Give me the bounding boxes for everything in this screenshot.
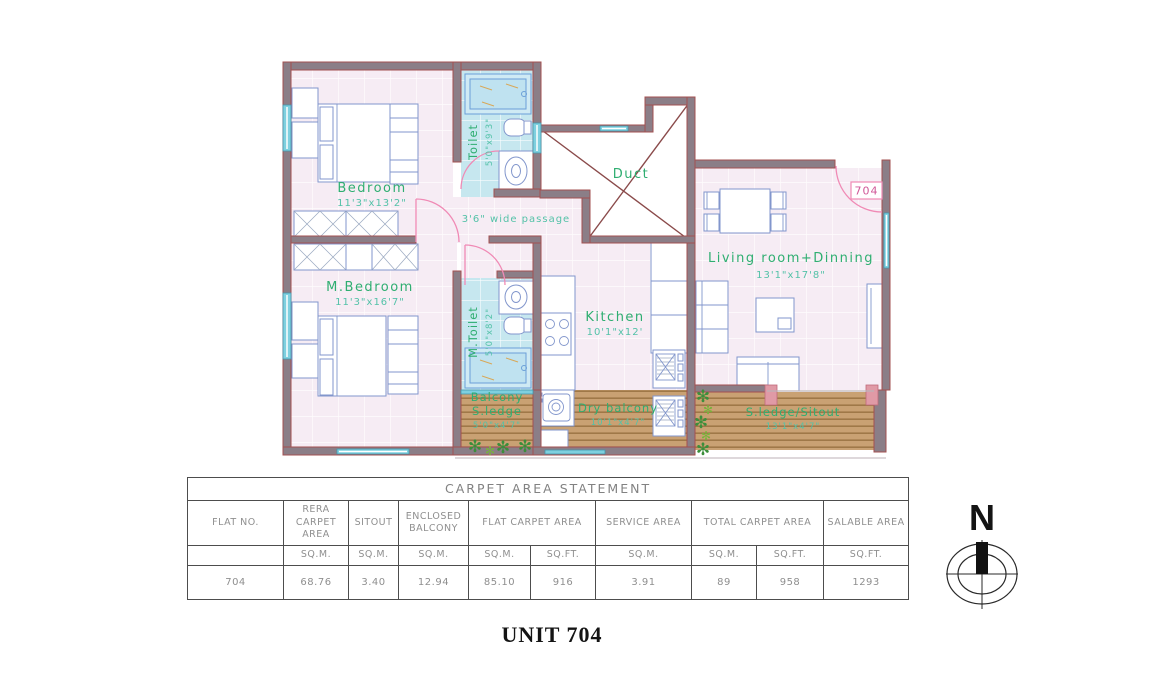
window — [600, 126, 628, 131]
unit-cell: SQ.FT. — [824, 546, 909, 566]
hob — [541, 313, 571, 355]
pillow — [320, 145, 333, 179]
unit-cell: SQ.M. — [349, 546, 399, 566]
wardrobe — [372, 244, 418, 270]
living-label: Living room+Dinning — [708, 251, 874, 266]
pillow — [320, 107, 333, 141]
side-table — [292, 122, 318, 158]
unit-title: UNIT 704 — [452, 622, 652, 648]
value-rera-carpet: 68.76 — [284, 566, 349, 600]
col-service-area: SERVICE AREA — [596, 501, 692, 546]
plant-icon: ✻ — [485, 444, 495, 458]
value-total-carpet-sqft: 958 — [757, 566, 824, 600]
value-flat-no: 704 — [188, 566, 284, 600]
toilet-dims: 5'0"x9'3" — [485, 118, 495, 166]
col-total-carpet-area: TOTAL CARPET AREA — [692, 501, 824, 546]
value-service-area: 3.91 — [596, 566, 692, 600]
tall-unit — [651, 315, 687, 353]
table-header-row: FLAT NO. RERA CARPET AREA SITOUT ENCLOSE… — [188, 501, 909, 546]
table-title-row: CARPET AREA STATEMENT — [188, 478, 909, 501]
window — [337, 449, 409, 454]
sitout-pillar — [765, 385, 777, 405]
north-label: N — [969, 497, 995, 538]
compass-needle — [976, 542, 988, 574]
carpet-area-table: CARPET AREA STATEMENT FLAT NO. RERA CARP… — [187, 477, 909, 600]
col-rera-carpet-area: RERA CARPET AREA — [284, 501, 349, 546]
sofa-three-seat — [696, 281, 728, 353]
col-salable-area: SALABLE AREA — [824, 501, 909, 546]
plant-icon: ✻ — [496, 438, 510, 458]
sitout-label: S.ledge/Sitout — [746, 405, 841, 419]
flat-number-tag: 704 — [851, 182, 882, 199]
wc — [504, 119, 536, 136]
kitchen-label: Kitchen — [585, 310, 644, 325]
plant-icon: ✻ — [696, 440, 710, 460]
col-enclosed-balcony: ENCLOSED BALCONY — [399, 501, 469, 546]
toilet-label: Toilet — [466, 124, 480, 161]
m-bedroom-label: M.Bedroom — [326, 280, 414, 295]
flat-number: 704 — [855, 185, 879, 198]
table-units-row: SQ.M. SQ.M. SQ.M. SQ.M. SQ.FT. SQ.M. SQ.… — [188, 546, 909, 566]
side-table — [292, 88, 318, 118]
window — [283, 293, 291, 359]
sitout-pillar — [866, 385, 878, 405]
window — [884, 213, 889, 268]
value-total-carpet-sqm: 89 — [692, 566, 757, 600]
unit-cell: SQ.M. — [284, 546, 349, 566]
m-toilet-dims: 5'0"x8'2" — [485, 308, 495, 356]
north-compass: N — [932, 496, 1032, 618]
bedroom-label: Bedroom — [337, 181, 406, 196]
sitout-floor — [695, 392, 876, 450]
floor-plan-sheet: 704 ✻ ✻ ✻ ✻ ✻ ✻ ✻ ✻ ✻ Bedroom 11'3"x13'2… — [0, 0, 1170, 700]
wardrobe — [346, 244, 372, 270]
wc — [504, 317, 536, 334]
unit-cell — [188, 546, 284, 566]
wardrobe — [294, 211, 346, 237]
m-bedroom-dims: 11'3"x16'7" — [335, 297, 405, 308]
plant-icon: ✻ — [468, 437, 482, 457]
kitchen-dims: 10'1"x12' — [587, 327, 644, 338]
unit-cell: SQ.FT. — [757, 546, 824, 566]
balcony-label-line1: Balcony — [471, 390, 524, 404]
wardrobe — [346, 211, 398, 237]
tv-unit — [867, 284, 882, 348]
floor-plan-drawing: 704 ✻ ✻ ✻ ✻ ✻ ✻ ✻ ✻ ✻ Bedroom 11'3"x13'2… — [0, 0, 1170, 472]
col-flat-carpet-area: FLAT CARPET AREA — [469, 501, 596, 546]
value-sitout: 3.40 — [349, 566, 399, 600]
side-table — [292, 344, 318, 378]
dry-balcony-dims: 10'1"x4'7" — [591, 418, 646, 428]
sitout-dims: 13'1"x4'7" — [766, 422, 821, 432]
unit-cell: SQ.M. — [596, 546, 692, 566]
m-toilet-label: M.Toilet — [466, 306, 480, 358]
unit-cell: SQ.M. — [692, 546, 757, 566]
compass-icon: N — [932, 496, 1032, 614]
value-flat-carpet-sqft: 916 — [531, 566, 596, 600]
balcony-dims: 5'0"x4'7" — [473, 421, 521, 431]
window — [283, 105, 291, 151]
col-flat-no: FLAT NO. — [188, 501, 284, 546]
tall-unit — [651, 243, 687, 315]
window — [545, 450, 605, 454]
washbasin — [499, 151, 533, 191]
dry-balcony-label: Dry balcony — [578, 401, 658, 415]
window — [533, 123, 541, 153]
col-sitout: SITOUT — [349, 501, 399, 546]
bedroom-dims: 11'3"x13'2" — [337, 198, 407, 209]
side-table — [292, 302, 318, 340]
duct-label: Duct — [613, 167, 650, 182]
passage-label: 3'6" wide passage — [462, 214, 570, 225]
unit-cell: SQ.M. — [469, 546, 531, 566]
pillow — [320, 359, 333, 395]
plant-icon: ✻ — [518, 437, 532, 457]
washing-machine — [538, 390, 574, 426]
value-salable-area: 1293 — [824, 566, 909, 600]
table-data-row: 704 68.76 3.40 12.94 85.10 916 3.91 89 9… — [188, 566, 909, 600]
balcony-label-line2: S.ledge — [472, 404, 522, 418]
kitchen-sink — [653, 350, 685, 388]
unit-cell: SQ.FT. — [531, 546, 596, 566]
washbasin — [499, 281, 533, 314]
wardrobe — [294, 244, 346, 270]
center-table — [756, 298, 794, 332]
pillow — [320, 319, 333, 355]
value-enclosed-balcony: 12.94 — [399, 566, 469, 600]
unit-cell: SQ.M. — [399, 546, 469, 566]
dresser — [388, 316, 418, 394]
table-title: CARPET AREA STATEMENT — [188, 478, 909, 501]
value-flat-carpet-sqm: 85.10 — [469, 566, 531, 600]
living-dims: 13'1"x17'8" — [756, 270, 826, 281]
